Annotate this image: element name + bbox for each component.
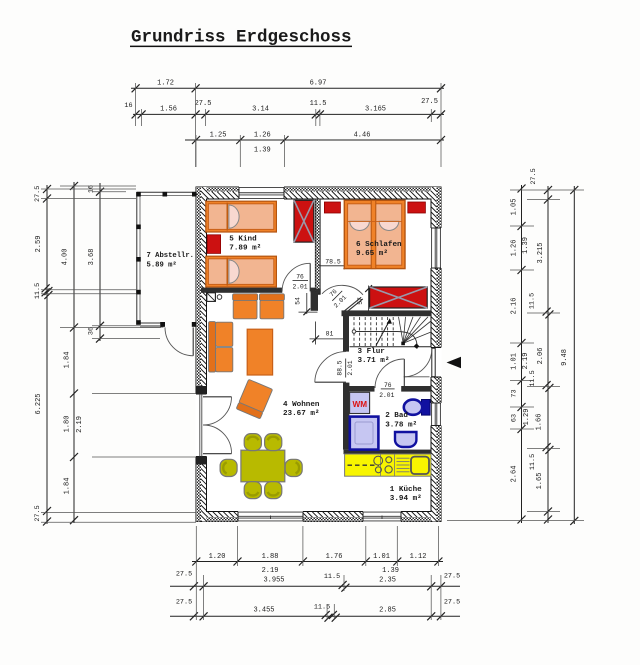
svg-text:2.59: 2.59	[35, 236, 43, 253]
svg-text:27.5: 27.5	[444, 573, 460, 581]
svg-text:2 Bad: 2 Bad	[385, 412, 408, 420]
svg-text:3.165: 3.165	[365, 105, 386, 113]
svg-text:3.955: 3.955	[263, 576, 284, 584]
svg-text:1.20: 1.20	[209, 553, 226, 561]
svg-text:7 Abstellr.: 7 Abstellr.	[147, 252, 194, 260]
svg-text:4.00: 4.00	[62, 249, 70, 266]
svg-text:3.215: 3.215	[537, 242, 545, 263]
svg-text:2.19: 2.19	[262, 567, 279, 575]
svg-text:3.78 m²: 3.78 m²	[385, 421, 417, 430]
svg-text:1.88: 1.88	[262, 553, 279, 561]
svg-text:63: 63	[511, 414, 519, 422]
svg-text:1.25: 1.25	[210, 131, 227, 139]
svg-text:3 Flur: 3 Flur	[358, 348, 386, 356]
svg-text:3.71 m²: 3.71 m²	[358, 356, 390, 365]
svg-text:4.46: 4.46	[354, 131, 371, 139]
svg-text:1.39: 1.39	[522, 237, 530, 254]
svg-text:2.35: 2.35	[379, 576, 396, 584]
svg-text:27.5: 27.5	[176, 571, 192, 579]
svg-text:27.5: 27.5	[530, 168, 538, 184]
svg-text:78.5: 78.5	[325, 259, 341, 266]
svg-text:11.5: 11.5	[529, 454, 537, 470]
svg-text:WM: WM	[353, 400, 368, 409]
svg-text:7.89 m²: 7.89 m²	[229, 244, 261, 253]
svg-text:3.455: 3.455	[253, 606, 274, 614]
svg-text:11.5: 11.5	[34, 283, 42, 299]
svg-text:11.5: 11.5	[310, 100, 327, 108]
svg-text:Grundriss Erdgeschoss: Grundriss Erdgeschoss	[131, 28, 352, 48]
svg-text:57: 57	[357, 297, 364, 305]
svg-text:54: 54	[294, 297, 301, 305]
svg-text:6 Schlafen: 6 Schlafen	[356, 241, 402, 249]
svg-text:2.01: 2.01	[379, 392, 394, 399]
svg-text:2.01: 2.01	[347, 360, 354, 375]
svg-text:11.5: 11.5	[529, 370, 537, 386]
svg-text:1.76: 1.76	[326, 553, 343, 561]
svg-text:1.66: 1.66	[536, 414, 544, 431]
svg-text:1.01: 1.01	[373, 553, 390, 561]
svg-text:1.39: 1.39	[254, 147, 271, 155]
svg-text:5.89 m²: 5.89 m²	[147, 261, 177, 270]
svg-text:1.72: 1.72	[157, 80, 174, 88]
svg-text:1.56: 1.56	[160, 105, 177, 113]
svg-text:9.48: 9.48	[561, 349, 569, 366]
svg-text:1.26: 1.26	[511, 240, 519, 257]
svg-text:76: 76	[384, 382, 392, 389]
svg-text:16: 16	[124, 102, 132, 110]
svg-text:1 Küche: 1 Küche	[390, 486, 422, 494]
svg-text:11.5: 11.5	[314, 604, 330, 612]
svg-text:88.5: 88.5	[337, 360, 344, 375]
svg-text:4 Wohnen: 4 Wohnen	[283, 401, 320, 409]
svg-text:1.12: 1.12	[410, 553, 427, 561]
svg-text:2.19: 2.19	[76, 416, 84, 433]
svg-text:2.06: 2.06	[537, 348, 545, 365]
svg-text:2.01: 2.01	[292, 283, 307, 290]
svg-text:1.84: 1.84	[64, 478, 72, 495]
svg-text:27.5: 27.5	[195, 100, 212, 108]
svg-text:2.85: 2.85	[379, 606, 396, 614]
svg-text:1.84: 1.84	[64, 352, 72, 369]
svg-text:27.5: 27.5	[444, 599, 460, 607]
svg-text:27.5: 27.5	[421, 98, 438, 106]
svg-text:1.26: 1.26	[254, 131, 271, 139]
svg-text:81: 81	[326, 331, 334, 338]
svg-text:76: 76	[296, 273, 304, 280]
svg-text:6.97: 6.97	[310, 80, 327, 88]
svg-text:73: 73	[511, 389, 519, 397]
svg-text:1.01: 1.01	[511, 353, 519, 370]
svg-text:5 Kind: 5 Kind	[229, 235, 257, 243]
svg-text:1.39: 1.39	[382, 567, 399, 575]
svg-text:2.19: 2.19	[522, 353, 530, 370]
svg-text:1.05: 1.05	[511, 199, 519, 216]
svg-text:27.5: 27.5	[34, 186, 42, 202]
svg-text:1.80: 1.80	[64, 416, 72, 433]
svg-text:6.225: 6.225	[35, 393, 43, 414]
svg-text:3.14: 3.14	[252, 105, 269, 113]
svg-text:11.5: 11.5	[529, 293, 537, 309]
svg-text:1.65: 1.65	[536, 473, 544, 490]
svg-text:2.16: 2.16	[511, 298, 519, 315]
svg-text:36: 36	[88, 327, 96, 335]
svg-text:27.5: 27.5	[176, 599, 192, 607]
svg-text:11.5: 11.5	[324, 573, 340, 581]
svg-text:3.94 m²: 3.94 m²	[390, 494, 422, 503]
svg-text:2.64: 2.64	[511, 466, 519, 483]
svg-text:9.65 m²: 9.65 m²	[356, 249, 388, 258]
svg-text:1.29: 1.29	[523, 409, 531, 426]
svg-text:27.5: 27.5	[34, 505, 42, 521]
svg-text:3.68: 3.68	[88, 249, 96, 266]
svg-text:23.67 m²: 23.67 m²	[283, 409, 319, 418]
